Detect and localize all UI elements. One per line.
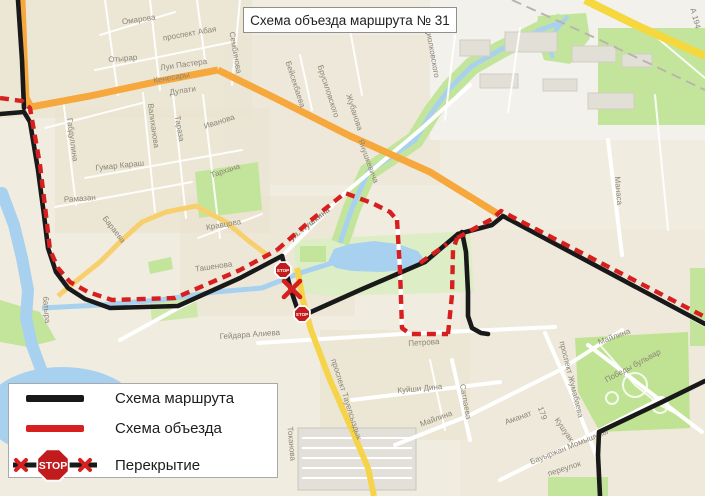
map-title-text: Схема объезда маршрута № 31 bbox=[250, 13, 450, 28]
legend-route-label: Схема маршрута bbox=[115, 390, 234, 407]
stop-sign-icon: STOP bbox=[9, 446, 101, 484]
street-label: Гейдара Алиева bbox=[219, 328, 281, 341]
street-label: Токанова bbox=[286, 426, 298, 462]
map-title: Схема объезда маршрута № 31 bbox=[243, 7, 457, 33]
legend-row-route: Схема маршрута bbox=[9, 390, 234, 407]
stop-sign-icon: STOP bbox=[274, 261, 292, 279]
svg-text:STOP: STOP bbox=[296, 312, 308, 317]
legend-detour-label: Схема объезда bbox=[115, 420, 222, 437]
map-screenshot: Омаровапроспект АбаяОтырарЛуи ПастераКен… bbox=[0, 0, 705, 496]
legend-row-closure: STOP Перекрытие bbox=[9, 446, 200, 484]
svg-text:STOP: STOP bbox=[39, 460, 67, 472]
route-line-sample bbox=[9, 395, 101, 402]
legend: Схема маршрута Схема объезда STOP Перекр… bbox=[8, 383, 278, 478]
legend-closure-label: Перекрытие bbox=[115, 457, 200, 474]
svg-text:STOP: STOP bbox=[277, 268, 289, 273]
stop-sign-icon: STOP bbox=[293, 305, 311, 323]
legend-row-detour: Схема объезда bbox=[9, 420, 222, 437]
detour-line-sample bbox=[9, 425, 101, 432]
